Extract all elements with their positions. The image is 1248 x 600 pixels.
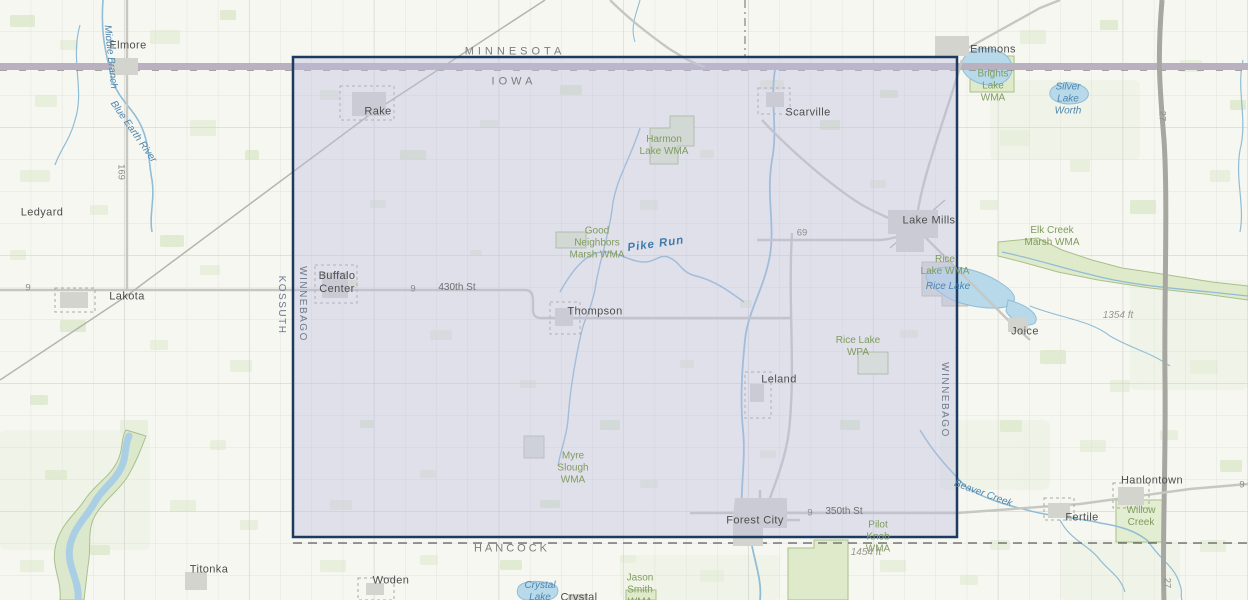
wma-label-rice-lake-wma: Rice Lake WMA xyxy=(921,254,970,278)
county-label-kossuth: KOSSUTH xyxy=(275,276,287,335)
road-label-69: 69 xyxy=(797,227,808,238)
town-label-buffalo-center: Buffalo Center xyxy=(319,270,356,296)
town-label-fertile: Fertile xyxy=(1065,512,1098,525)
road-label-9-430th: 9 xyxy=(410,283,415,294)
town-label-forest-city: Forest City xyxy=(726,515,784,528)
road-label-169: 169 xyxy=(115,164,126,180)
map-labels-layer: MINNESOTAIOWAKOSSUTHWINNEBAGOWINNEBAGOHA… xyxy=(0,0,1248,600)
road-label-9-east: 9 xyxy=(1239,479,1244,490)
water-label-rice-lake: Rice Lake xyxy=(926,281,970,293)
town-label-leland: Leland xyxy=(761,374,796,387)
county-label-winnebago-east: WINNEBAGO xyxy=(938,362,950,438)
town-label-titonka: Titonka xyxy=(190,564,228,577)
water-label-beaver-creek: Beaver Creek xyxy=(952,478,1013,510)
town-label-elmore: Elmore xyxy=(109,40,146,53)
wma-label-willow-creek: Willow Creek xyxy=(1127,505,1156,529)
wma-label-rice-lake-wpa: Rice Lake WPA xyxy=(836,335,880,359)
state-label-iowa: IOWA xyxy=(492,76,537,89)
town-label-emmons: Emmons xyxy=(970,44,1016,57)
road-label-9-350th: 9 xyxy=(807,507,812,518)
wma-label-pilot-knob: Pilot Knob WMA xyxy=(866,519,890,554)
wma-label-elk-creek-marsh: Elk Creek Marsh WMA xyxy=(1025,225,1080,249)
town-label-woden: Woden xyxy=(373,575,410,588)
town-label-scarville: Scarville xyxy=(785,107,830,120)
water-label-crystal-lake: Crystal Lake xyxy=(524,580,555,600)
town-label-lakota: Lakota xyxy=(109,291,144,304)
wma-label-myre-slough: Myre Slough WMA xyxy=(557,450,588,485)
elevation-label-1454: 1454 ft xyxy=(851,547,882,559)
water-label-middle-branch: Middle Branch xyxy=(101,25,119,90)
wma-label-jason-smith: Jason Smith WMA xyxy=(627,572,654,600)
wma-label-good-neighbors-marsh: Good Neighbors Marsh WMA xyxy=(570,225,625,260)
town-label-crystal: Crystal xyxy=(560,592,597,600)
county-label-winnebago-west: WINNEBAGO xyxy=(296,266,308,342)
water-label-blue-earth-river: Blue Earth River xyxy=(107,99,158,165)
street-label-350th: 350th St xyxy=(825,506,862,518)
map-canvas[interactable]: MINNESOTAIOWAKOSSUTHWINNEBAGOWINNEBAGOHA… xyxy=(0,0,1248,600)
town-label-joice: Joice xyxy=(1011,326,1039,339)
road-label-27-north: 27 xyxy=(1156,111,1167,122)
wma-label-harmon-lake: Harmon Lake WMA xyxy=(640,134,689,158)
state-label-minnesota: MINNESOTA xyxy=(465,46,566,59)
county-label-hancock: HANCOCK xyxy=(474,543,550,556)
water-label-silver-lake-worth: Silver Lake Worth xyxy=(1055,81,1082,116)
town-label-thompson: Thompson xyxy=(567,306,622,319)
town-label-rake: Rake xyxy=(364,106,391,119)
street-label-430th: 430th St xyxy=(438,282,475,294)
road-label-27-south: 27 xyxy=(1161,578,1172,589)
elevation-label-1354: 1354 ft xyxy=(1103,310,1134,322)
water-label-pike-run: Pike Run xyxy=(627,234,686,255)
wma-label-brights-lake: Brights Lake WMA xyxy=(977,68,1008,103)
road-label-9-west: 9 xyxy=(25,282,30,293)
town-label-hanlontown: Hanlontown xyxy=(1121,475,1183,488)
town-label-lake-mills: Lake Mills xyxy=(903,215,956,228)
town-label-ledyard: Ledyard xyxy=(21,207,64,220)
